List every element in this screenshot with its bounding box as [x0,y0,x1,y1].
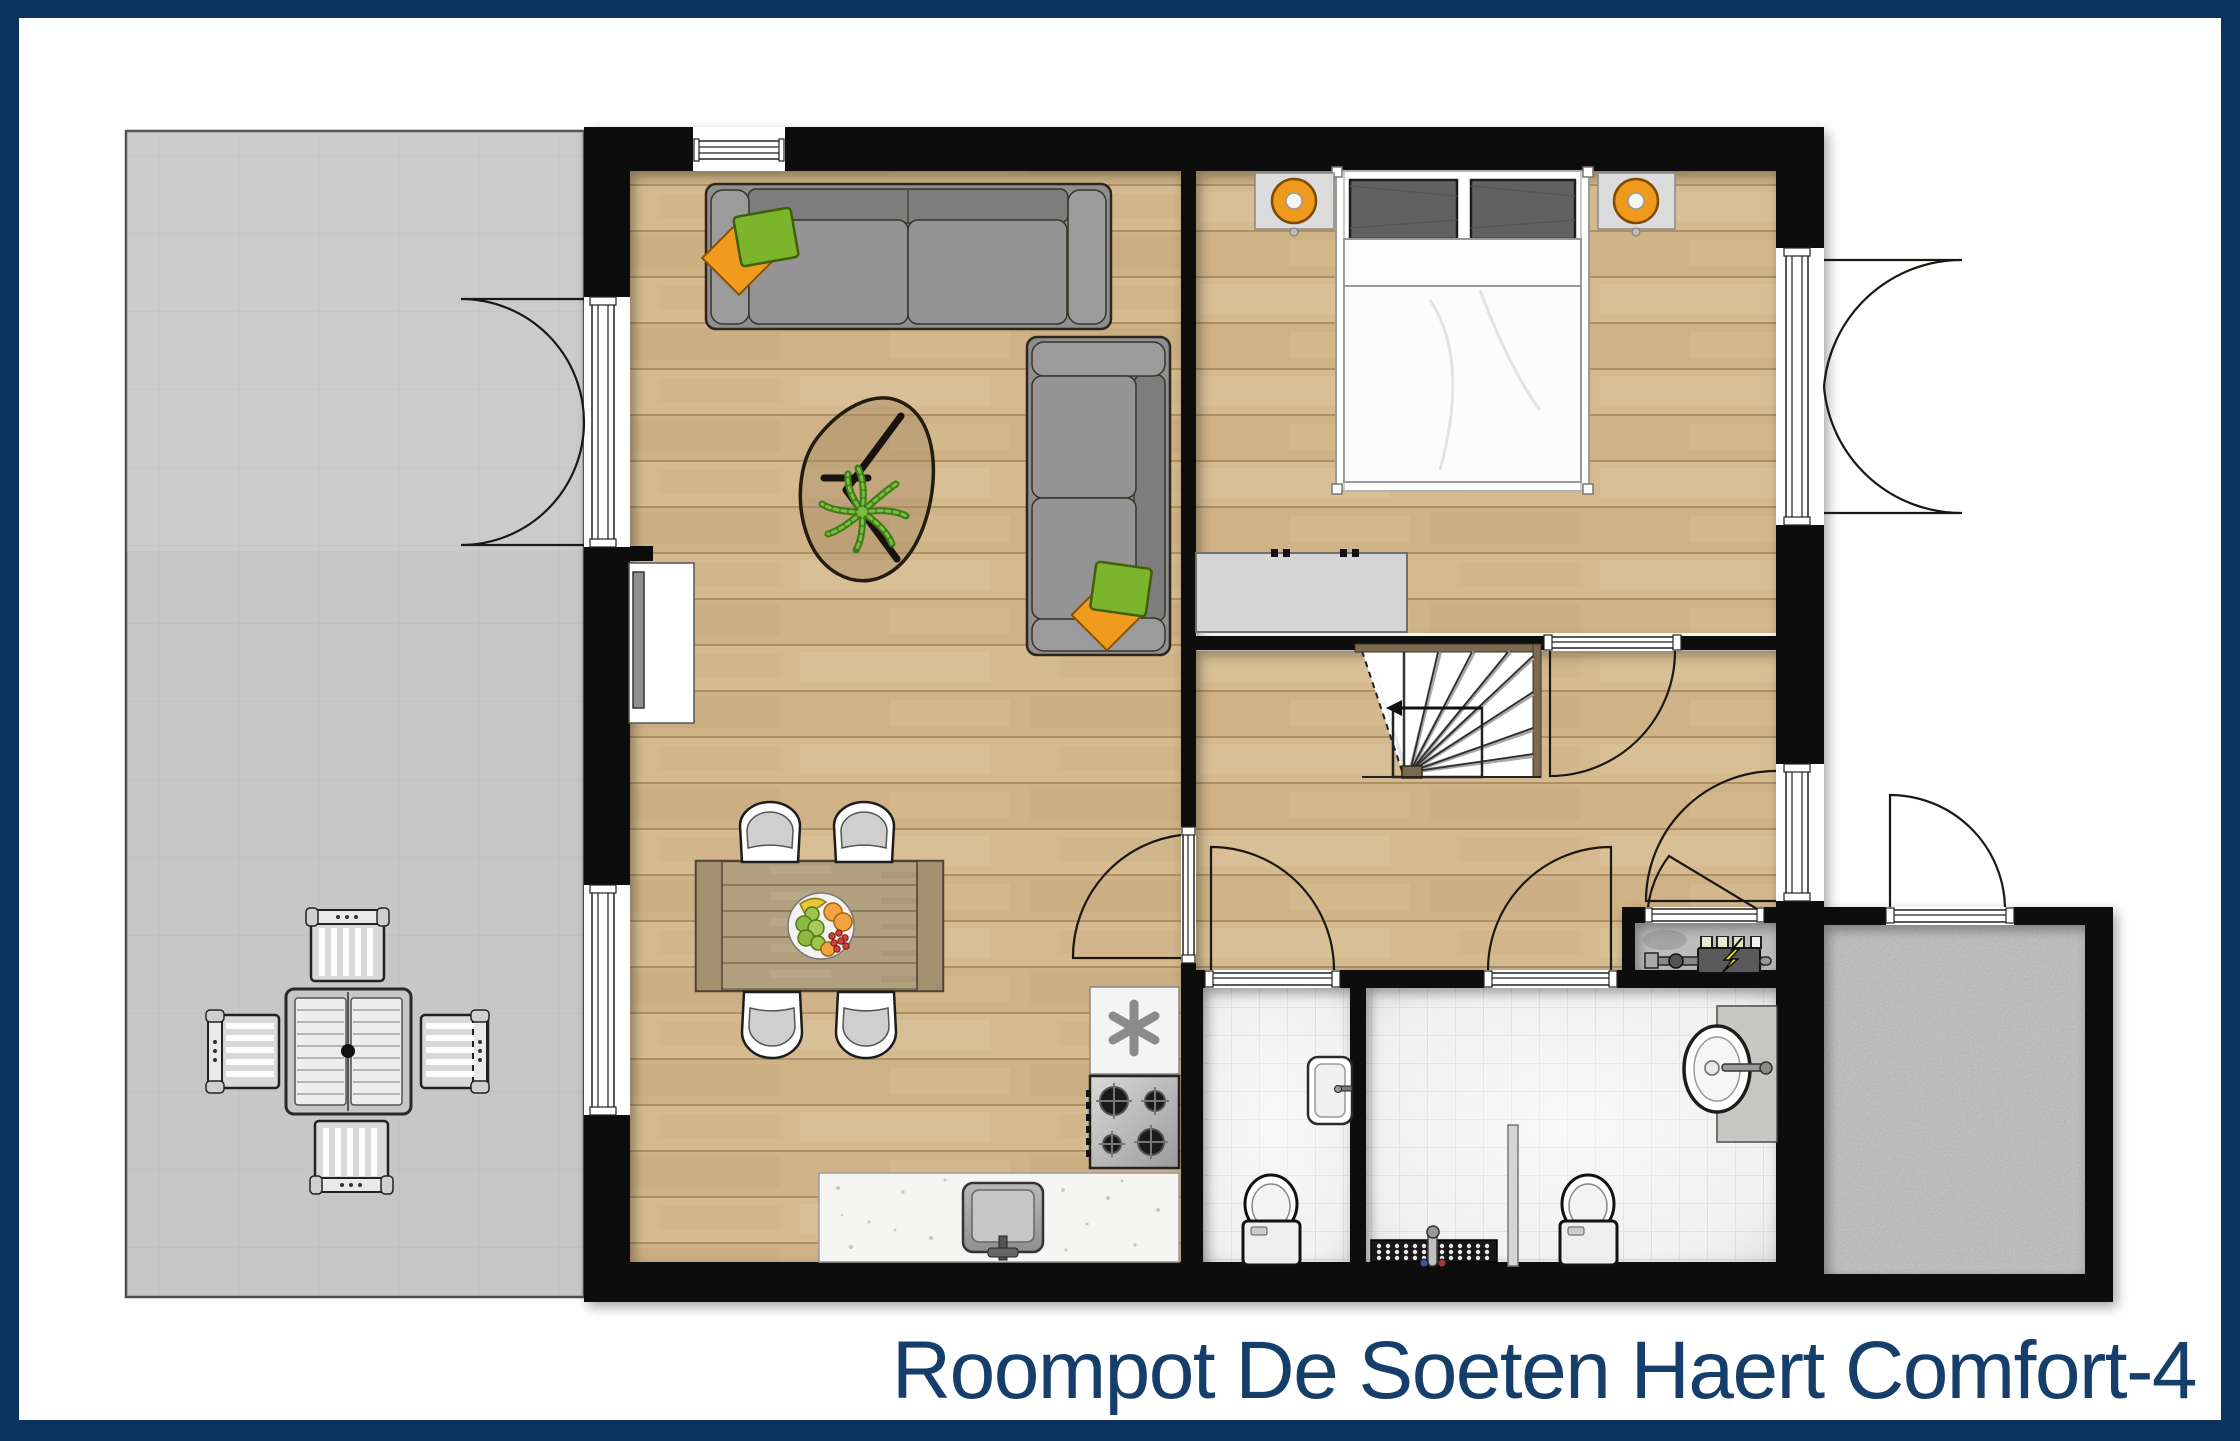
svg-text:Roompot De Soeten Haert Comfor: Roompot De Soeten Haert Comfort-4 [892,1325,2196,1416]
